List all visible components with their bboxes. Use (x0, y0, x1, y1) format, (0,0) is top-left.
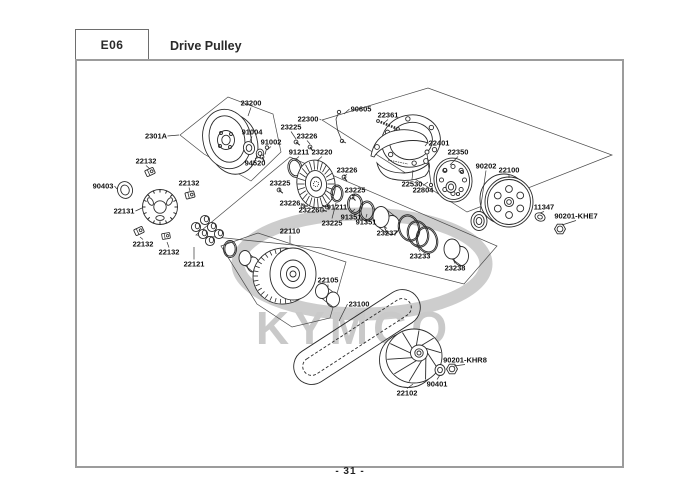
part-label: 23225 (322, 219, 343, 228)
leader-line (168, 135, 180, 136)
part-label: 23100 (349, 300, 370, 309)
clutch-plate-22350 (431, 156, 475, 205)
part-label: 91002 (261, 138, 282, 147)
leader-line (296, 157, 299, 160)
pin-91002 (265, 146, 269, 155)
part-label: 90201-KHR8 (443, 356, 487, 365)
part-label: 91211 (327, 203, 347, 212)
part-label: 23225 (281, 123, 302, 132)
part-label: 23220 (312, 148, 333, 157)
leader-line (136, 208, 143, 211)
part-label: 23226 (299, 206, 320, 215)
nut-90201-khe7 (555, 224, 566, 234)
ring-23225 (331, 185, 343, 202)
page-number: - 31 - (0, 466, 700, 477)
leader-line (146, 166, 150, 170)
part-label: 22132 (133, 240, 154, 249)
leader-line (562, 221, 576, 226)
leader-line (307, 141, 310, 145)
part-label: 22132 (179, 179, 200, 188)
part-label: 23225 (345, 186, 366, 195)
part-label: 22110 (280, 227, 300, 236)
part-label: 23226 (337, 166, 358, 175)
part-label: 22121 (184, 260, 205, 269)
spring-rod-90605 (336, 110, 346, 143)
part-label: 23238 (445, 264, 466, 273)
leader-line (540, 212, 544, 214)
part-label: 90403 (93, 182, 114, 191)
part-label: 22131 (114, 207, 135, 216)
part-label: 23226 (297, 132, 318, 141)
part-label: 22102 (397, 389, 418, 398)
part-label: 22132 (136, 157, 157, 166)
leader-line (344, 109, 350, 114)
part-label: 23237 (377, 229, 398, 238)
part-label: 90201-KHE7 (554, 212, 597, 221)
part-label: 22401 (429, 139, 450, 148)
part-label: 23233 (410, 252, 431, 261)
leader-line (291, 132, 296, 140)
exploded-parts-diagram: KYMCO (0, 0, 700, 495)
part-label: 91211 (289, 148, 309, 157)
cam-plate-22131 (142, 189, 178, 225)
leader-line (317, 157, 322, 162)
part-label: 2301A (145, 132, 168, 141)
part-label: 22350 (448, 148, 469, 157)
part-label: 90401 (427, 380, 448, 389)
drive-plate-23200 (196, 104, 264, 179)
parts-catalog-page: E06 Drive Pulley KYMCO (0, 0, 700, 495)
leader-line (384, 120, 388, 124)
part-label: 90202 (476, 162, 497, 171)
part-label: 22804 (413, 186, 435, 195)
part-label: 94520 (245, 159, 266, 168)
leader-line (248, 108, 251, 117)
part-label: 91004 (242, 128, 264, 137)
part-label: 23225 (270, 179, 291, 188)
part-label: 90605 (351, 105, 372, 114)
washer-11347 (534, 211, 547, 222)
part-label: 22361 (378, 111, 399, 120)
part-label: 23200 (241, 99, 262, 108)
oil-seal-90403 (116, 180, 135, 200)
rollers-22121 (191, 215, 223, 245)
leader-line (189, 188, 190, 192)
leader-line (115, 186, 118, 189)
part-label: 22105 (318, 276, 339, 285)
part-label: 22132 (159, 248, 180, 257)
part-label: 23226 (280, 199, 301, 208)
part-label: 11347 (534, 203, 554, 212)
washer-90401 (435, 365, 445, 376)
part-label: 91351 (356, 218, 377, 227)
part-label: 22100 (499, 166, 520, 175)
leader-line (320, 119, 322, 120)
clutch-bell-22100 (480, 174, 533, 227)
